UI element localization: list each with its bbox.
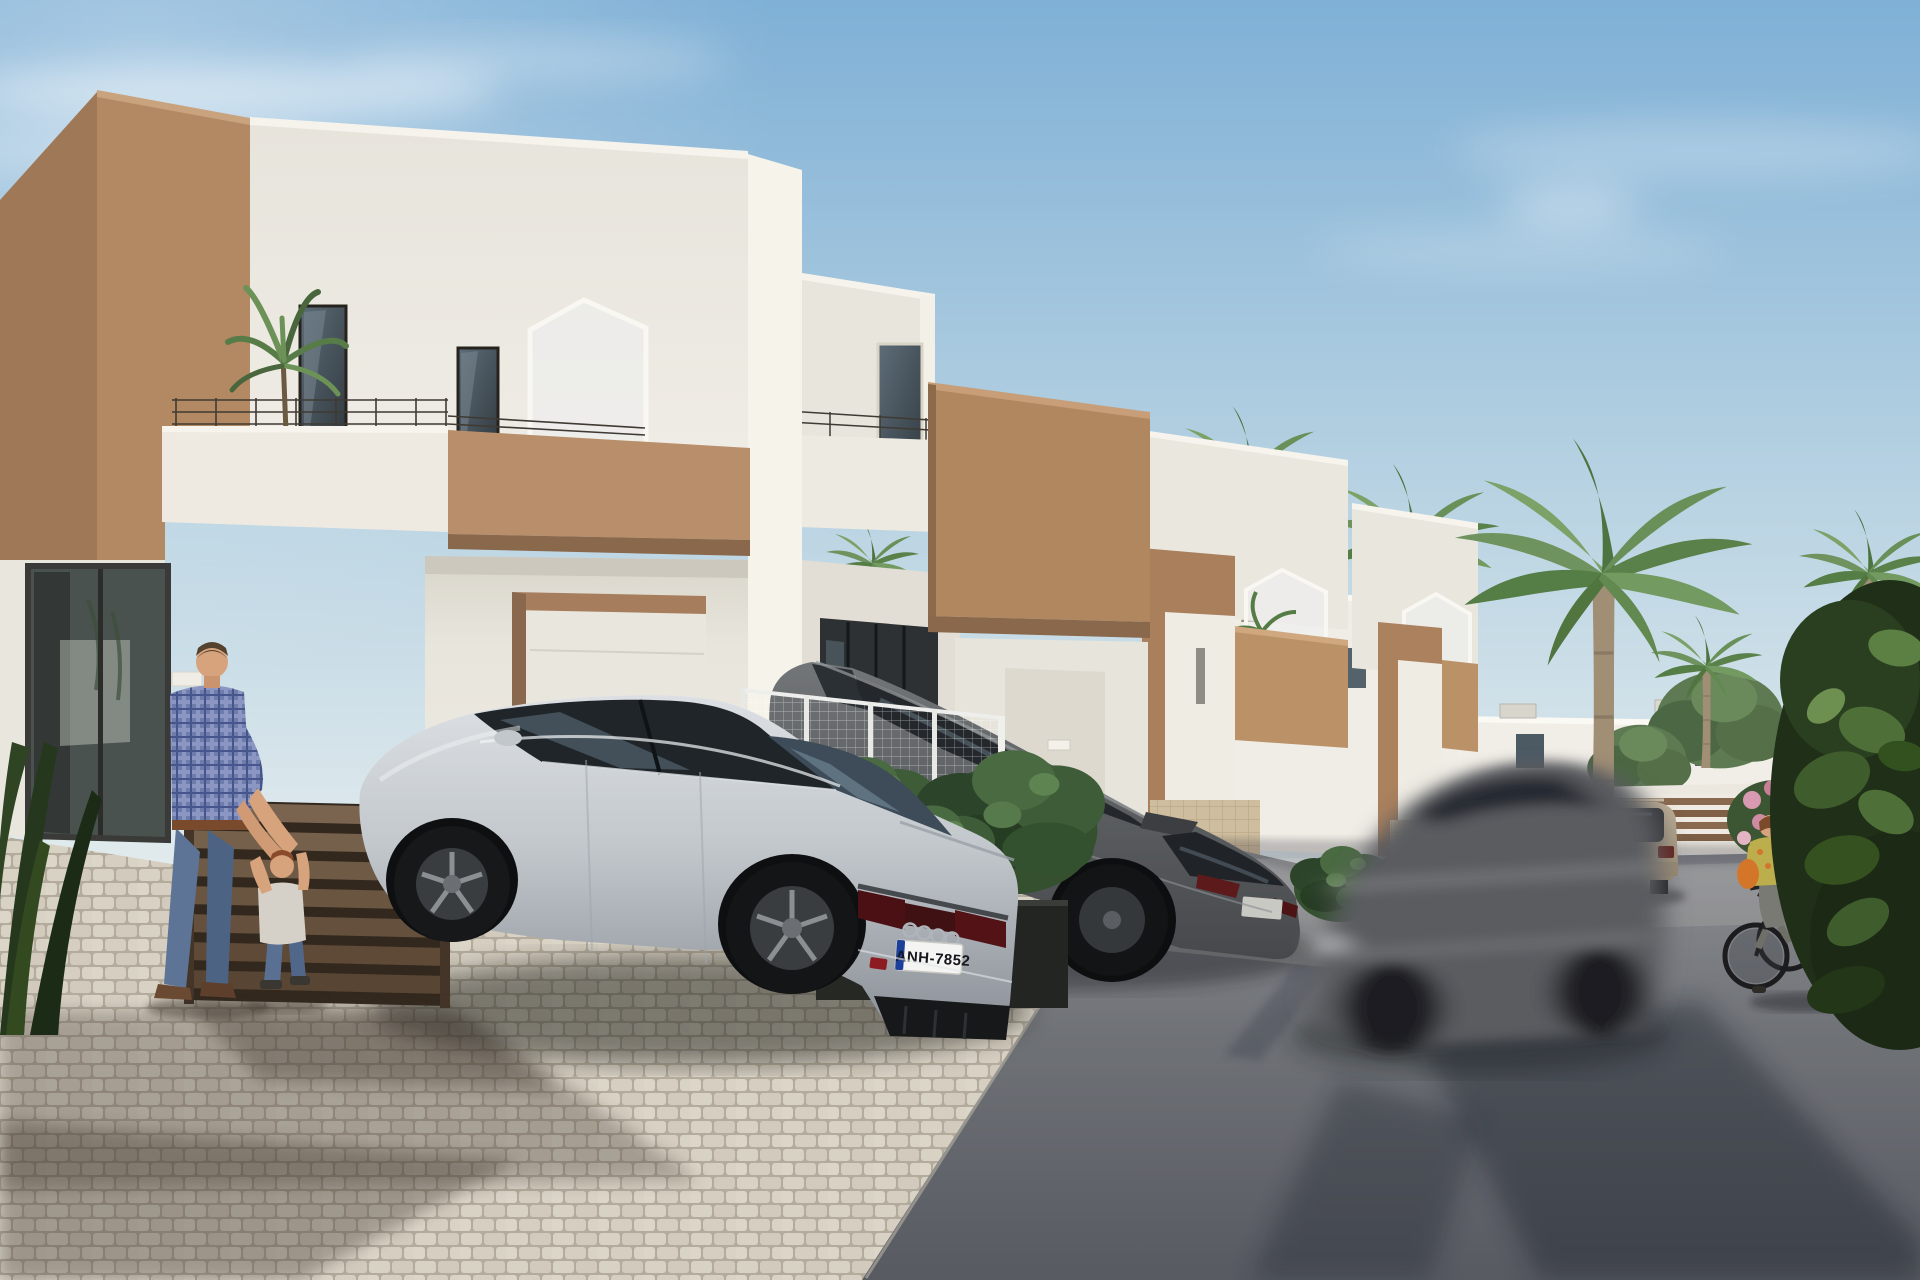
audi-mirror bbox=[494, 730, 522, 746]
audi-rs-badge bbox=[869, 957, 887, 970]
balcony-tan-band bbox=[448, 430, 750, 540]
tan-volume bbox=[928, 384, 1150, 622]
render-canvas: ANH-7852 bbox=[0, 0, 1920, 1280]
wall-lamp bbox=[172, 672, 202, 686]
wall-lamp bbox=[1048, 740, 1070, 750]
beige-suv-taillight bbox=[1658, 846, 1674, 858]
shoulder-bag bbox=[1737, 859, 1759, 889]
balcony-parapet bbox=[162, 430, 448, 532]
suv-license-plate bbox=[1241, 896, 1283, 919]
audi-license-plate: ANH-7852 bbox=[895, 940, 972, 975]
scene-svg: ANH-7852 bbox=[0, 0, 1920, 1280]
